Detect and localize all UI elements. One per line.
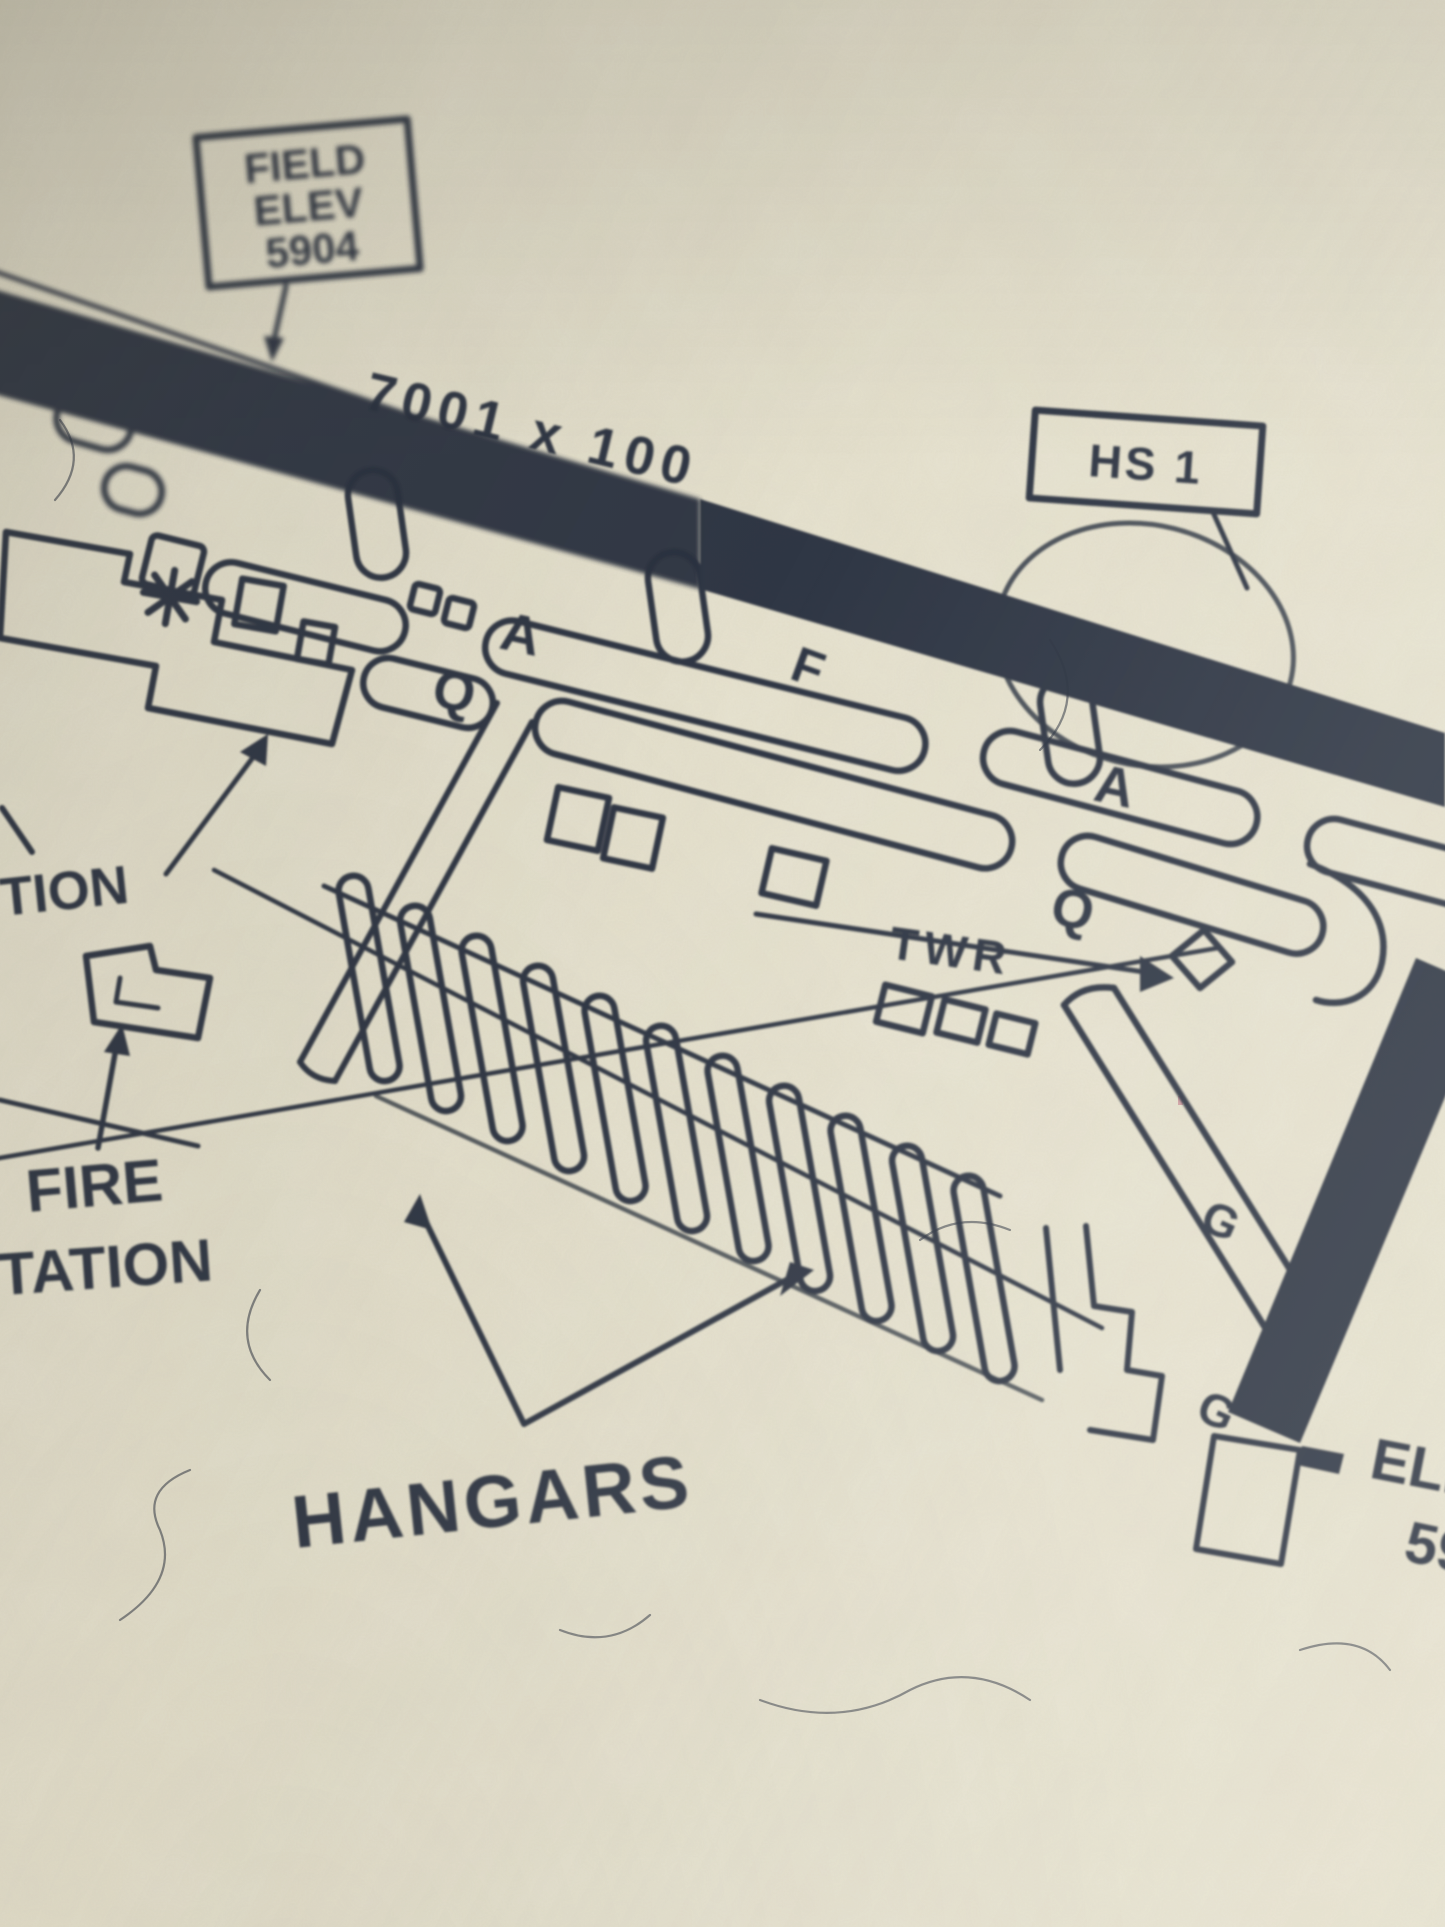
- hs1-label: HS 1: [1087, 434, 1205, 494]
- airport-diagram-photo: FIELD ELEV 5904 7001 x 100 HS 1: [0, 0, 1445, 1927]
- field-elev-line3: 5904: [264, 222, 362, 277]
- fire-station-line1: FIRE: [23, 1146, 165, 1225]
- diagram-canvas: FIELD ELEV 5904 7001 x 100 HS 1: [0, 0, 1445, 1927]
